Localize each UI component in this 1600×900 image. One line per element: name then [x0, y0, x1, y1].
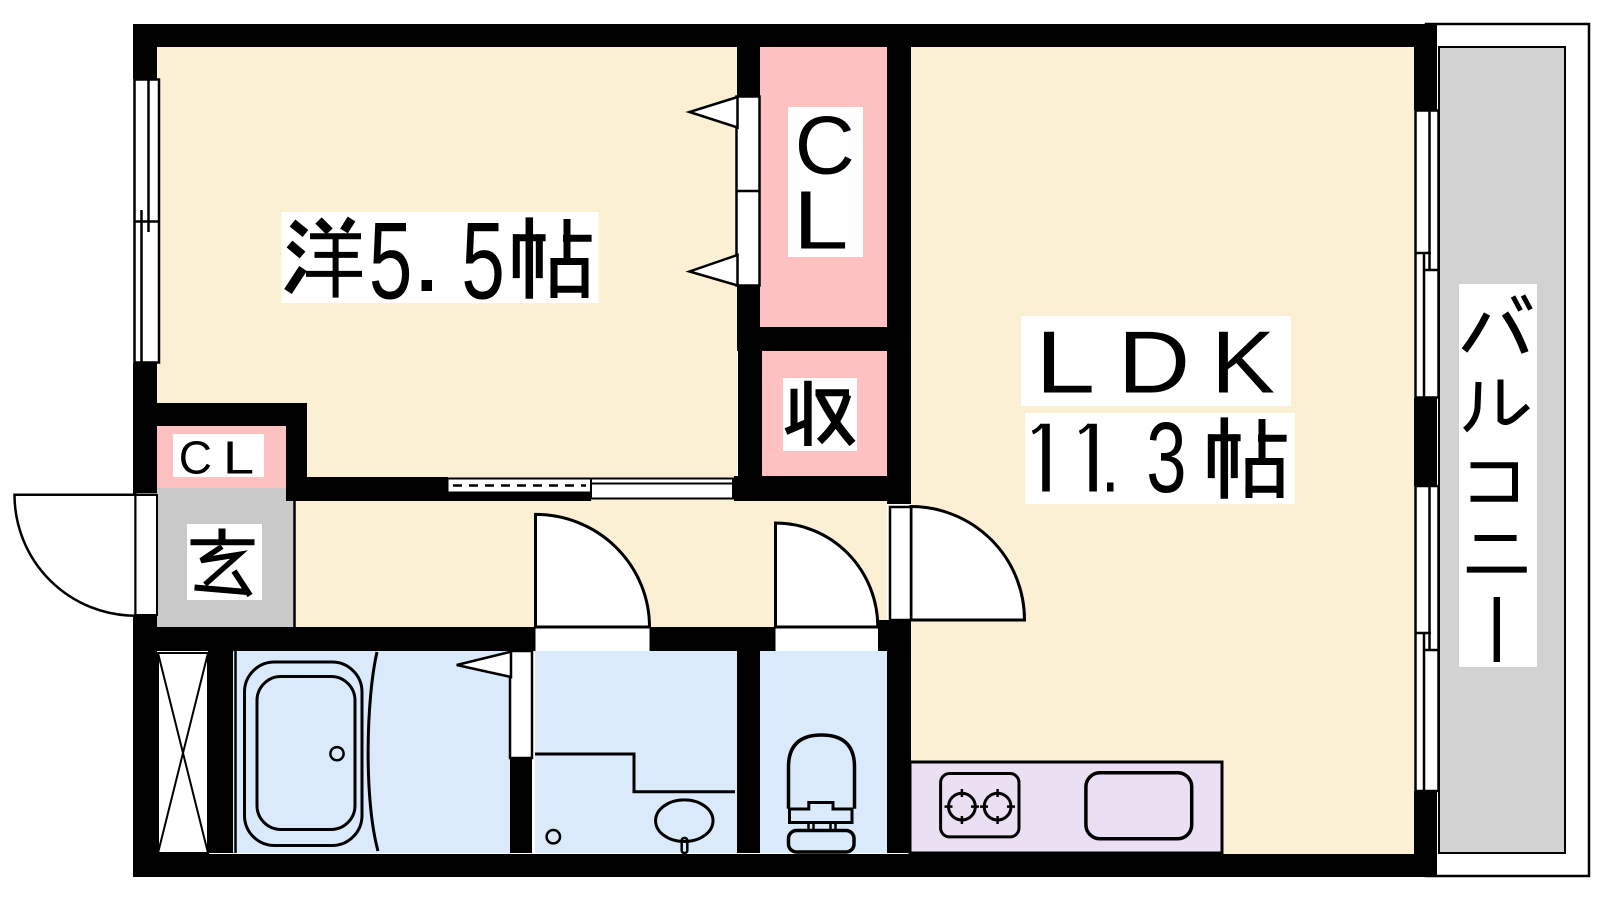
svg-text:5: 5 — [369, 200, 413, 323]
svg-text:L: L — [223, 432, 254, 483]
svg-text:L: L — [793, 174, 848, 266]
svg-text:C: C — [179, 432, 212, 484]
svg-text:3: 3 — [1146, 402, 1186, 514]
svg-text:L: L — [1035, 313, 1095, 411]
svg-text:D: D — [1118, 313, 1190, 411]
svg-text:K: K — [1211, 314, 1275, 412]
svg-text:5: 5 — [461, 200, 505, 323]
